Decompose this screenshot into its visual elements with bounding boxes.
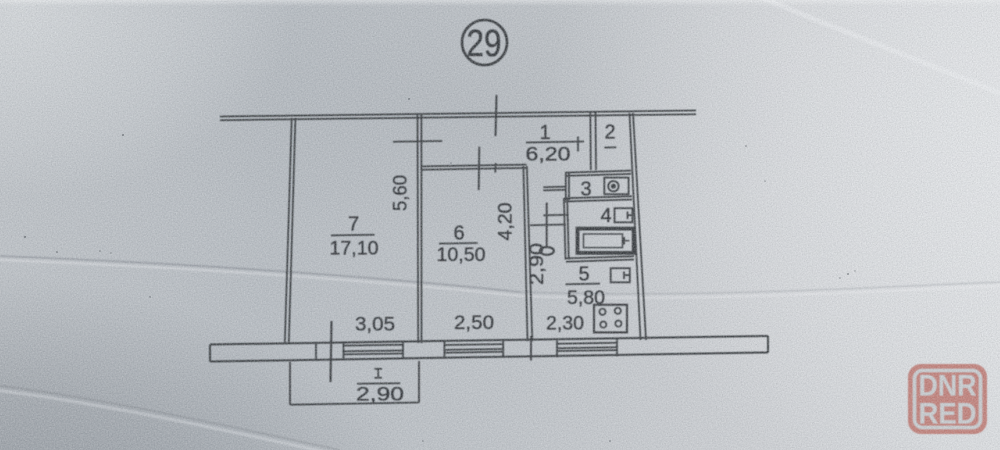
- svg-text:2,30: 2,30: [546, 313, 584, 335]
- svg-text:3,05: 3,05: [355, 314, 395, 336]
- svg-text:RED: RED: [919, 398, 977, 431]
- svg-text:5,60: 5,60: [391, 175, 412, 211]
- svg-text:10,50: 10,50: [437, 244, 486, 266]
- svg-text:17,10: 17,10: [330, 238, 379, 260]
- svg-text:4,20: 4,20: [496, 203, 517, 241]
- svg-text:2,90: 2,90: [356, 384, 404, 406]
- svg-text:1: 1: [539, 122, 550, 144]
- svg-text:6,20: 6,20: [526, 144, 571, 166]
- svg-text:7: 7: [348, 214, 359, 236]
- svg-text:2: 2: [604, 122, 615, 144]
- svg-text:4: 4: [600, 205, 611, 227]
- svg-text:5: 5: [578, 264, 589, 286]
- svg-text:6: 6: [453, 223, 464, 245]
- svg-text:29: 29: [467, 23, 502, 65]
- svg-text:2,90: 2,90: [527, 243, 548, 285]
- svg-text:2,50: 2,50: [454, 312, 494, 334]
- svg-text:3: 3: [580, 179, 591, 201]
